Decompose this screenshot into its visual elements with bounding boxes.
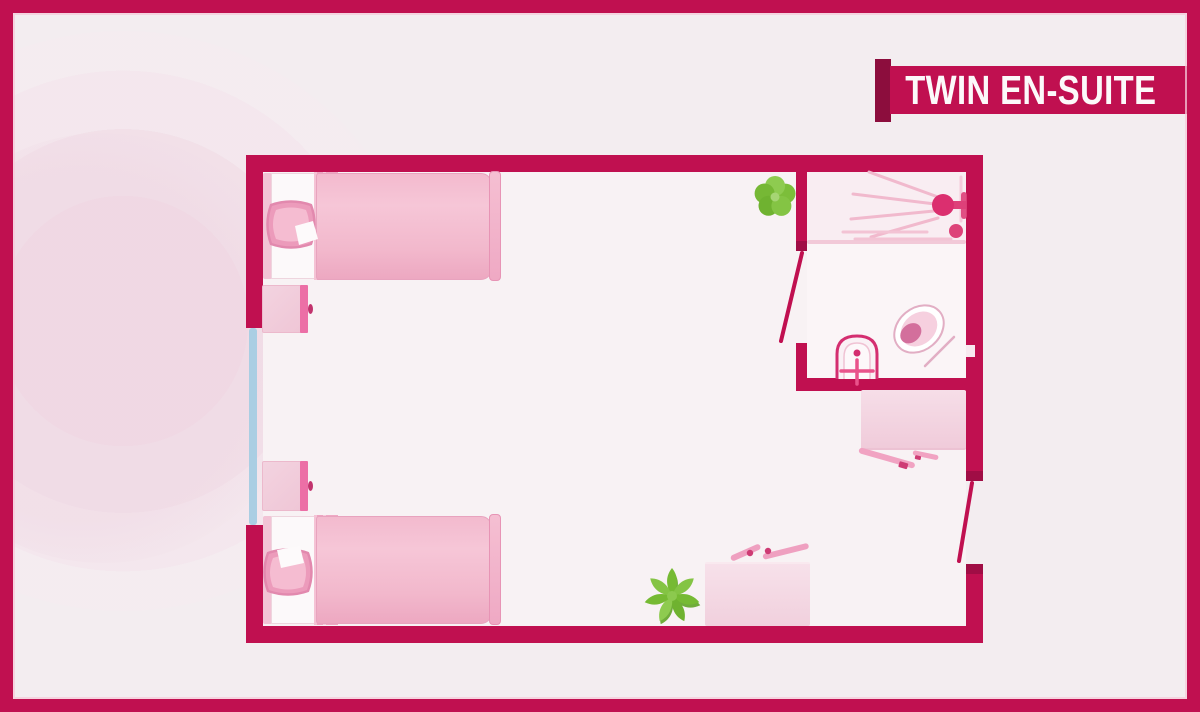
bed-top-sheet <box>271 173 318 279</box>
wall-cap-entry-bottom <box>966 564 983 574</box>
nightstand-top-edge <box>300 285 308 333</box>
window-left <box>249 328 257 525</box>
nightstand-bottom <box>262 461 302 511</box>
desk-bottom <box>705 562 810 626</box>
bathroom-wall-vertical-lower <box>796 343 807 380</box>
shower-area <box>807 172 966 241</box>
wall-right-lower <box>966 564 983 643</box>
bed-bottom-duvet <box>316 516 492 624</box>
nightstand-bottom-edge <box>300 461 308 511</box>
banner-fold-tab <box>875 59 891 122</box>
wall-notch <box>966 345 975 357</box>
wall-left-upper <box>246 155 263 328</box>
title-banner: TWIN EN-SUITE <box>890 66 1200 114</box>
nightstand-top <box>262 285 302 333</box>
bed-top-duvet <box>316 173 492 280</box>
page-title: TWIN EN-SUITE <box>890 70 1156 111</box>
bed-bottom-sheet <box>271 516 318 624</box>
wall-bottom <box>246 626 983 643</box>
wall-right-upper <box>966 155 983 481</box>
wall-cap-entry-top <box>966 471 983 481</box>
floorplan-page: TWIN EN-SUITE <box>0 0 1200 712</box>
bed-top-footboard <box>489 171 501 281</box>
wall-cap-bathroom <box>796 241 807 251</box>
bathroom-wall-vertical-upper <box>796 172 807 251</box>
shower-screen-line <box>807 240 966 244</box>
bed-bottom-footboard <box>489 514 501 625</box>
nightstand-top-knob <box>308 304 313 314</box>
desk-right <box>861 390 966 450</box>
wall-left-lower <box>246 525 263 643</box>
wall-top <box>246 155 983 172</box>
nightstand-bottom-knob <box>308 481 313 491</box>
